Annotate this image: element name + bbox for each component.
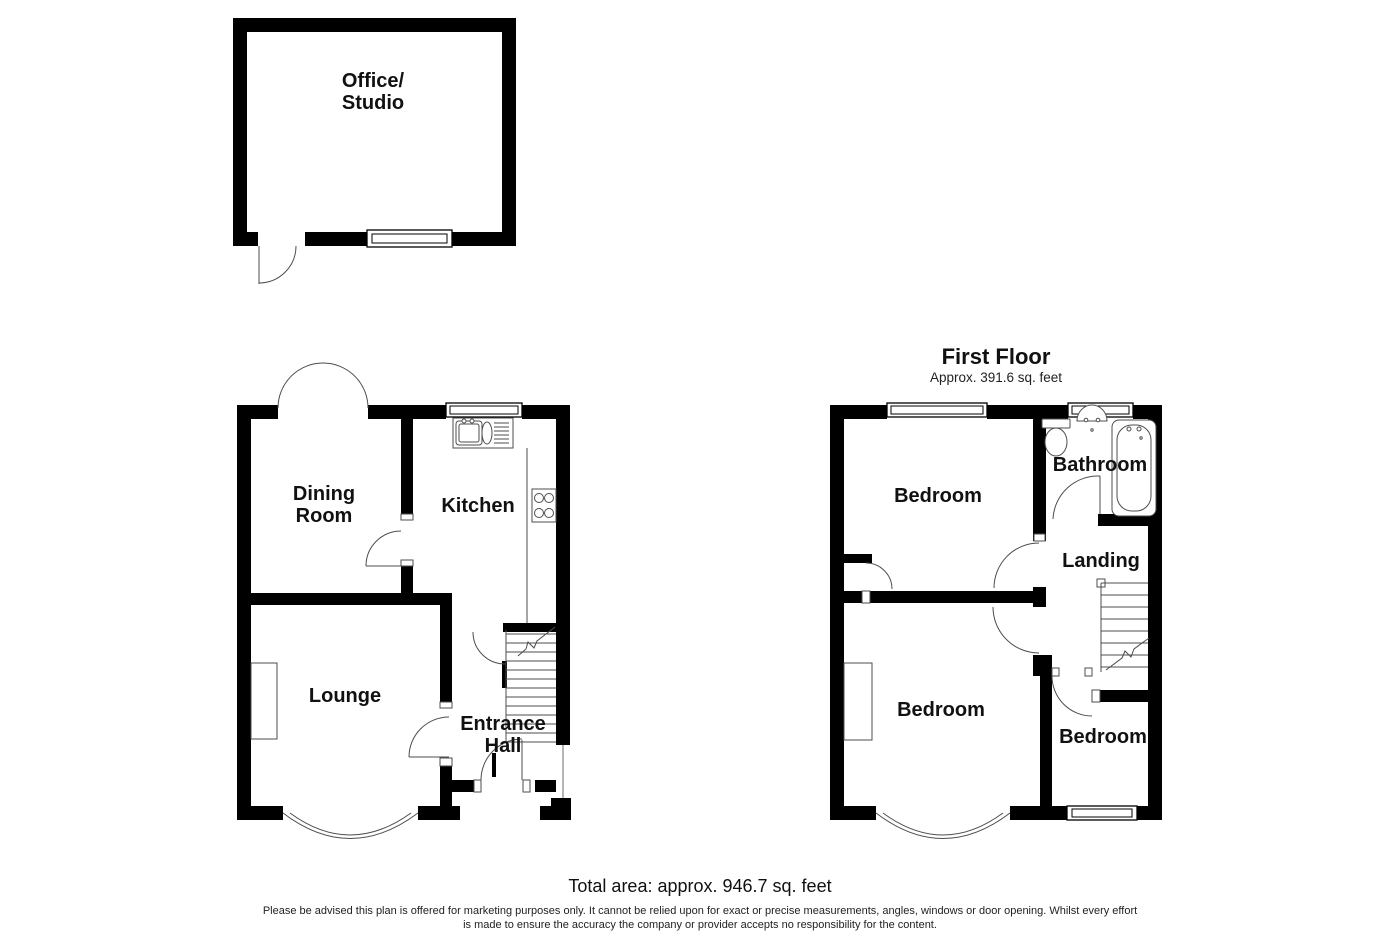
office-studio-plan: Office/ Studio bbox=[233, 18, 516, 284]
room-label-office-line1: Office/ bbox=[342, 70, 405, 92]
bedroom-chimney-breast bbox=[844, 663, 872, 740]
room-label-lounge: Lounge bbox=[309, 685, 381, 707]
first-floor-title: First Floor bbox=[942, 344, 1051, 369]
room-label-dining-line2: Room bbox=[296, 505, 353, 527]
basin bbox=[1077, 405, 1107, 431]
kitchen-hob bbox=[532, 489, 556, 522]
floor-plan-page: Office/ Studio bbox=[0, 0, 1400, 932]
total-area-text: Total area: approx. 946.7 sq. feet bbox=[568, 876, 831, 896]
lounge-door-swing bbox=[409, 717, 449, 757]
cupboard-door-swing bbox=[866, 563, 892, 589]
bedroom-front-window bbox=[887, 403, 987, 417]
first-floor-plan: First Floor Approx. 391.6 sq. feet bbox=[830, 344, 1162, 839]
office-window bbox=[367, 230, 452, 247]
staircase-first-floor bbox=[1097, 579, 1149, 672]
room-label-landing: Landing bbox=[1062, 550, 1140, 572]
bedroom-rear-door-swing bbox=[993, 607, 1039, 653]
lounge-chimney-breast bbox=[251, 663, 277, 739]
ground-floor-plan: Dining Room Kitchen Lounge Entrance Hall bbox=[237, 363, 571, 839]
french-doors-swing bbox=[278, 363, 368, 408]
room-label-dining-line1: Dining bbox=[293, 483, 355, 505]
floor-plan-canvas: Office/ Studio bbox=[0, 0, 1400, 932]
ground-floor-walls bbox=[237, 405, 571, 820]
room-label-office-line2: Studio bbox=[342, 92, 404, 114]
dining-kitchen-door-swing bbox=[366, 531, 401, 566]
first-floor-area: Approx. 391.6 sq. feet bbox=[930, 370, 1062, 385]
room-label-entrance-line1: Entrance bbox=[460, 713, 546, 735]
lounge-bay-window bbox=[283, 813, 418, 839]
office-walls bbox=[233, 18, 516, 246]
kitchen-sink-unit bbox=[453, 418, 513, 448]
bathroom-door-swing bbox=[1053, 476, 1100, 519]
room-label-kitchen: Kitchen bbox=[441, 495, 514, 517]
footer: Total area: approx. 946.7 sq. feet Pleas… bbox=[263, 876, 1137, 931]
kitchen-window bbox=[446, 403, 522, 417]
bedroom-small-door-swing bbox=[1052, 676, 1092, 716]
bedroom-front-door-swing bbox=[994, 543, 1039, 588]
room-label-bedroom-small: Bedroom bbox=[1059, 726, 1147, 748]
bedroom-bay-window bbox=[876, 813, 1010, 839]
room-label-bedroom-rear: Bedroom bbox=[897, 699, 985, 721]
disclaimer-line1: Please be advised this plan is offered f… bbox=[263, 905, 1137, 917]
room-label-entrance-line2: Hall bbox=[485, 735, 522, 757]
office-door-swing bbox=[259, 246, 296, 284]
disclaimer-line2: is made to ensure the accuracy the compa… bbox=[463, 919, 937, 931]
toilet bbox=[1042, 419, 1070, 456]
hall-kitchen-door-swing bbox=[473, 632, 505, 664]
room-label-bathroom: Bathroom bbox=[1053, 454, 1147, 476]
room-label-bedroom-front: Bedroom bbox=[894, 485, 982, 507]
bedroom-small-window bbox=[1067, 806, 1137, 820]
